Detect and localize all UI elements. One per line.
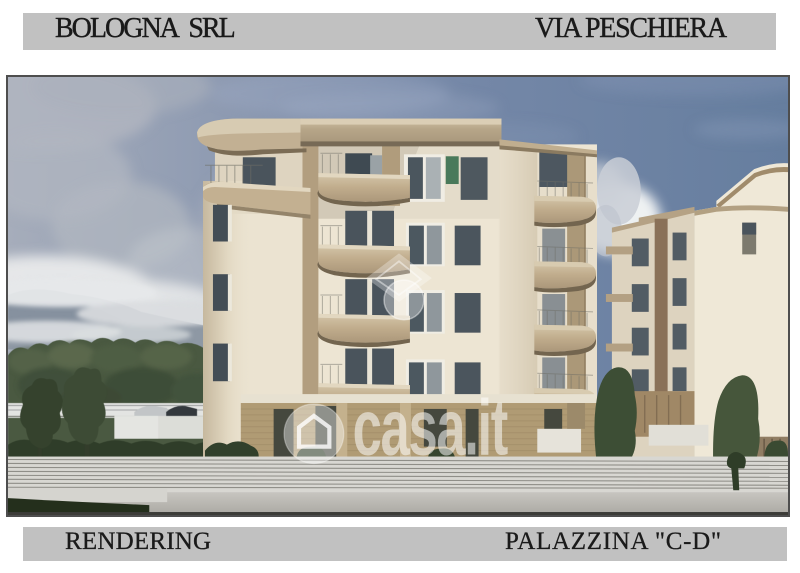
svg-text:casa.it: casa.it [353, 384, 508, 472]
